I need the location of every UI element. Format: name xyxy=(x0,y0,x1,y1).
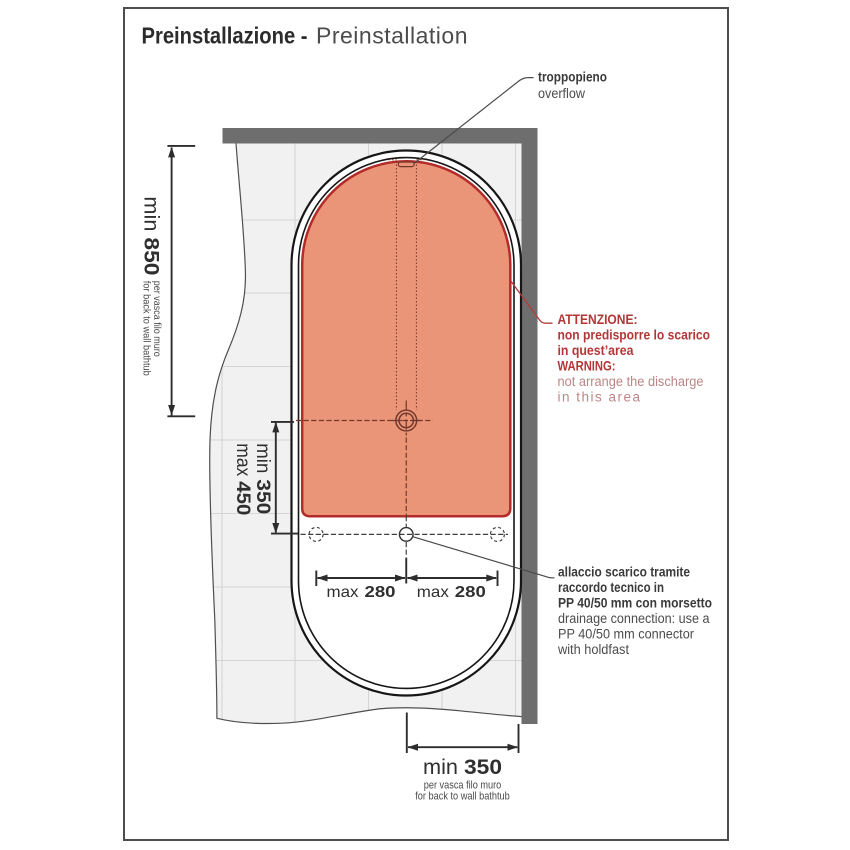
svg-text:for back to wall bathtub: for back to wall bathtub xyxy=(415,791,510,803)
svg-text:Preinstallation: Preinstallation xyxy=(316,23,468,49)
svg-text:min: min xyxy=(423,756,458,779)
svg-text:Preinstallazione -: Preinstallazione - xyxy=(142,23,308,49)
svg-text:allaccio scarico tramite: allaccio scarico tramite xyxy=(558,564,690,579)
svg-text:drainage connection: use a: drainage connection: use a xyxy=(558,611,710,626)
svg-text:max: max xyxy=(417,584,449,601)
svg-text:in this area: in this area xyxy=(558,389,641,404)
svg-text:PP 40/50 mm connector: PP 40/50 mm connector xyxy=(558,626,694,641)
svg-text:for back to wall bathtub: for back to wall bathtub xyxy=(141,281,153,376)
svg-text:with holdfast: with holdfast xyxy=(557,642,629,657)
svg-text:max: max xyxy=(232,443,253,476)
svg-text:280: 280 xyxy=(365,584,396,601)
svg-text:850: 850 xyxy=(140,237,163,275)
svg-text:non predisporre lo scarico: non predisporre lo scarico xyxy=(558,327,711,342)
svg-text:max: max xyxy=(327,584,359,601)
svg-text:PP 40/50 mm con morsetto: PP 40/50 mm con morsetto xyxy=(558,595,712,610)
svg-text:350: 350 xyxy=(464,756,502,779)
svg-text:350: 350 xyxy=(252,479,273,514)
svg-text:raccordo tecnico in: raccordo tecnico in xyxy=(558,580,664,595)
svg-text:in quest’area: in quest’area xyxy=(558,343,634,358)
svg-text:ATTENZIONE:: ATTENZIONE: xyxy=(558,312,638,327)
svg-text:WARNING:: WARNING: xyxy=(558,358,616,373)
svg-text:min: min xyxy=(140,196,163,231)
svg-text:not arrange the discharge: not arrange the discharge xyxy=(558,374,704,389)
svg-text:overflow: overflow xyxy=(538,86,585,101)
svg-text:450: 450 xyxy=(232,481,253,515)
svg-text:troppopieno: troppopieno xyxy=(538,70,607,85)
svg-text:280: 280 xyxy=(455,584,486,601)
svg-text:min: min xyxy=(252,443,273,473)
